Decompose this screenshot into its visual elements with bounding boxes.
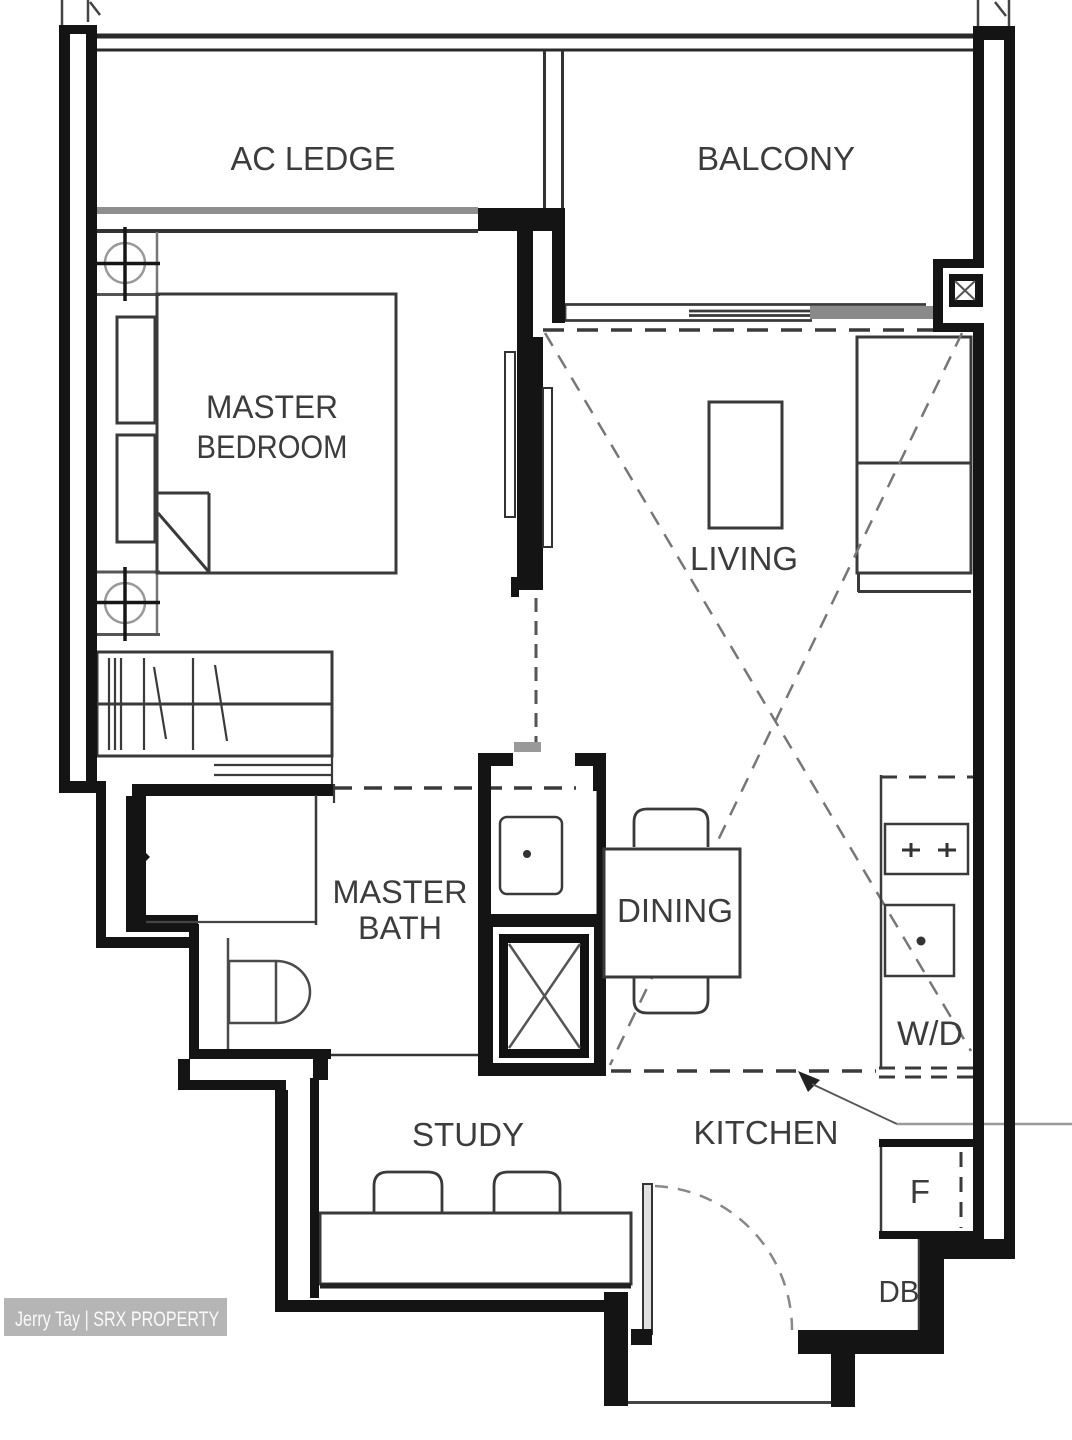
svg-text:LIVING: LIVING: [690, 540, 798, 577]
svg-text:Jerry Tay | SRX PROPERTY: Jerry Tay | SRX PROPERTY: [15, 1308, 220, 1332]
svg-text:F: F: [910, 1173, 930, 1210]
svg-text:AC LEDGE: AC LEDGE: [231, 140, 396, 177]
svg-text:STUDY: STUDY: [412, 1116, 524, 1153]
svg-text:KITCHEN: KITCHEN: [694, 1114, 839, 1151]
svg-text:W/D: W/D: [897, 1015, 963, 1053]
svg-text:BEDROOM: BEDROOM: [197, 429, 348, 465]
svg-text:MASTER: MASTER: [333, 874, 468, 910]
svg-text:BALCONY: BALCONY: [697, 140, 855, 177]
svg-text:BATH: BATH: [358, 910, 442, 946]
svg-text:DB: DB: [879, 1274, 920, 1309]
svg-text:MASTER: MASTER: [206, 389, 338, 425]
svg-text:DINING: DINING: [617, 892, 733, 929]
